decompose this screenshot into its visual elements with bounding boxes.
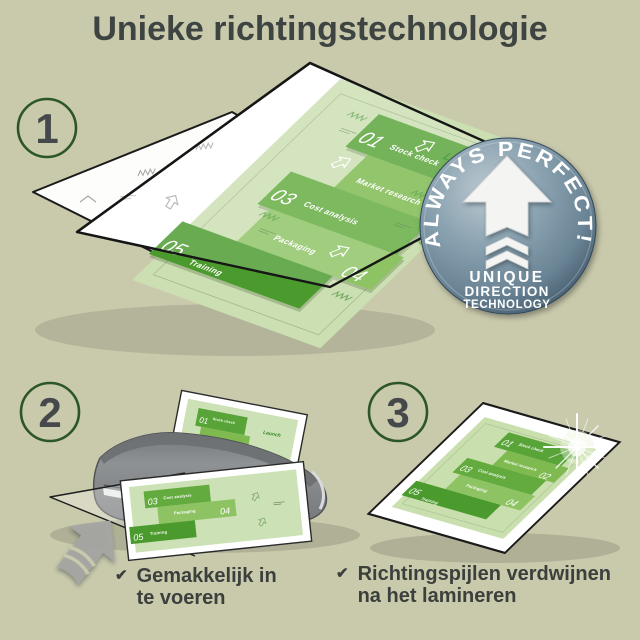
mini-band4-number: 04 — [220, 506, 231, 517]
step2-caption-line2: te voeren — [137, 587, 226, 609]
step1-number: 1 — [35, 105, 58, 152]
badge-line2: DIRECTION — [464, 284, 549, 299]
step3-caption-line1: Richtingspijlen verdwijnen — [358, 563, 611, 585]
step2-caption: ✔ Gemakkelijk in te voeren — [115, 565, 277, 609]
step3-caption: ✔ Richtingspijlen verdwijnen na het lami… — [336, 563, 611, 607]
mini-band3-number: 03 — [147, 496, 158, 507]
step3-number: 3 — [386, 389, 409, 436]
always-perfect-badge: ALWAYS PERFECT! UNIQUE DIRECTION TECHNOL… — [420, 138, 597, 314]
step2-caption-line1: Gemakkelijk in — [137, 565, 277, 587]
mini-band1-number: 01 — [199, 415, 209, 426]
infographic-canvas: Unieke richtingstechnologie — [0, 0, 640, 640]
check-icon: ✔ — [336, 563, 349, 585]
step2-illustration: 01 Stock check Launch 0 — [45, 390, 360, 593]
step3-caption-line2: na het lamineren — [358, 585, 517, 607]
badge-line3: TECHNOLOGY — [463, 299, 550, 311]
step2-number: 2 — [38, 389, 61, 436]
check-icon: ✔ — [115, 565, 128, 587]
illustration-svg: 01 Stock check Market research 02 03 Cos… — [0, 0, 640, 640]
